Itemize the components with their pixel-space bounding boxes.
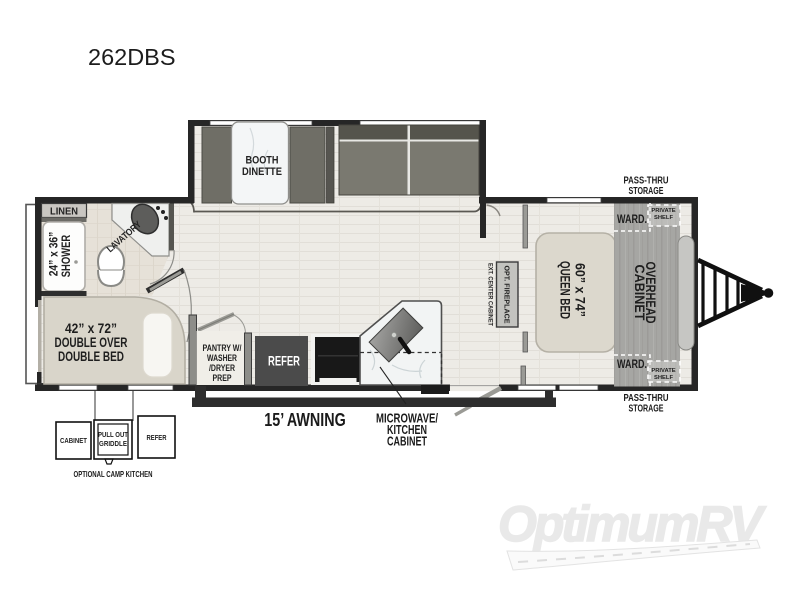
svg-text:BOOTH: BOOTH: [246, 155, 279, 167]
svg-text:LINEN: LINEN: [50, 207, 78, 218]
svg-text:CABINET: CABINET: [632, 265, 647, 322]
svg-text:262DBS: 262DBS: [88, 44, 176, 70]
svg-text:REFER: REFER: [268, 353, 300, 369]
svg-text:DOUBLE OVER: DOUBLE OVER: [55, 335, 128, 350]
svg-text:WARD.: WARD.: [617, 357, 647, 371]
svg-text:OPTIONAL CAMP KITCHEN: OPTIONAL CAMP KITCHEN: [74, 469, 153, 479]
svg-text:CABINET: CABINET: [387, 434, 427, 449]
svg-text:STORAGE: STORAGE: [629, 185, 664, 197]
svg-text:WARD.: WARD.: [617, 212, 647, 226]
svg-text:STORAGE: STORAGE: [629, 403, 664, 415]
svg-text:QUEEN BED: QUEEN BED: [557, 261, 572, 319]
svg-text:DOUBLE BED: DOUBLE BED: [58, 349, 124, 364]
svg-text:SHELF: SHELF: [654, 375, 673, 381]
svg-text:CABINET: CABINET: [60, 436, 87, 445]
svg-text:24” x 36”: 24” x 36”: [49, 232, 61, 277]
svg-text:SHELF: SHELF: [654, 215, 673, 221]
svg-text:SHOWER: SHOWER: [61, 234, 73, 277]
svg-text:OPT. FIREPLACE: OPT. FIREPLACE: [502, 266, 511, 324]
svg-text:42” x 72”: 42” x 72”: [65, 321, 117, 336]
svg-text:PRIVATE: PRIVATE: [651, 368, 675, 374]
svg-text:EXT. CENTER CABINET: EXT. CENTER CABINET: [487, 263, 494, 327]
svg-text:PULL OUT: PULL OUT: [98, 430, 128, 439]
svg-text:60” x 74”: 60” x 74”: [572, 263, 587, 317]
svg-text:PREP: PREP: [213, 373, 232, 384]
svg-text:DINETTE: DINETTE: [242, 166, 282, 178]
svg-text:PRIVATE: PRIVATE: [651, 208, 675, 214]
svg-text:GRIDDLE: GRIDDLE: [99, 439, 127, 448]
svg-text:15’ AWNING: 15’ AWNING: [264, 410, 346, 430]
svg-text:REFER: REFER: [147, 433, 167, 442]
